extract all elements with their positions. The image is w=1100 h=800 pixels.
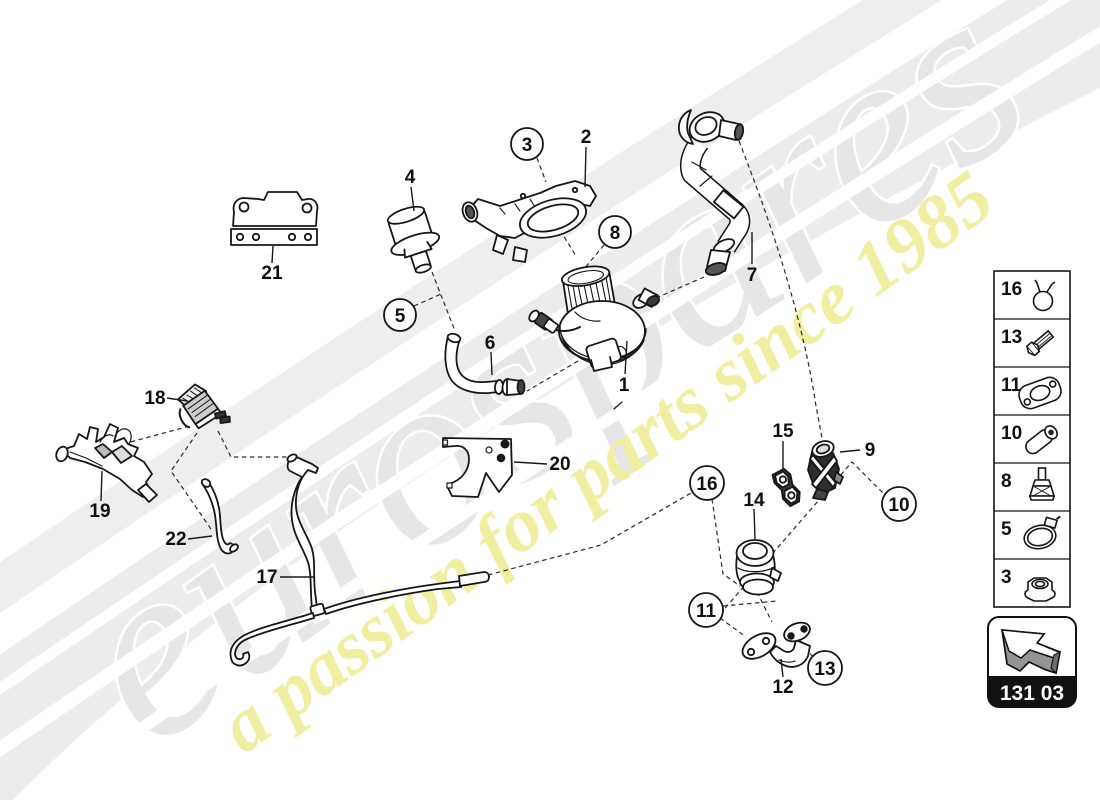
svg-text:11: 11 <box>696 601 717 622</box>
svg-text:22: 22 <box>165 529 186 550</box>
svg-text:5: 5 <box>1001 519 1012 540</box>
svg-text:1: 1 <box>619 375 630 396</box>
svg-text:2: 2 <box>581 127 592 148</box>
svg-text:10: 10 <box>888 495 909 516</box>
svg-text:15: 15 <box>772 421 794 442</box>
svg-text:5: 5 <box>395 306 406 327</box>
svg-text:131 03: 131 03 <box>1000 682 1064 705</box>
svg-text:18: 18 <box>144 388 165 409</box>
svg-text:13: 13 <box>814 659 835 680</box>
svg-text:4: 4 <box>405 167 416 188</box>
svg-text:16: 16 <box>696 474 717 495</box>
svg-text:20: 20 <box>549 454 570 475</box>
svg-text:17: 17 <box>256 567 277 588</box>
svg-text:3: 3 <box>522 135 533 156</box>
svg-text:19: 19 <box>89 501 110 522</box>
svg-text:8: 8 <box>610 223 621 244</box>
svg-text:21: 21 <box>261 263 283 284</box>
svg-text:10: 10 <box>1001 423 1022 444</box>
svg-text:16: 16 <box>1001 279 1022 300</box>
svg-text:7: 7 <box>747 265 758 286</box>
svg-text:3: 3 <box>1001 567 1012 588</box>
svg-text:8: 8 <box>1001 471 1012 492</box>
svg-text:13: 13 <box>1001 327 1022 348</box>
svg-text:12: 12 <box>772 677 793 698</box>
svg-text:14: 14 <box>743 490 765 511</box>
svg-text:6: 6 <box>485 333 496 354</box>
svg-text:9: 9 <box>865 440 876 461</box>
